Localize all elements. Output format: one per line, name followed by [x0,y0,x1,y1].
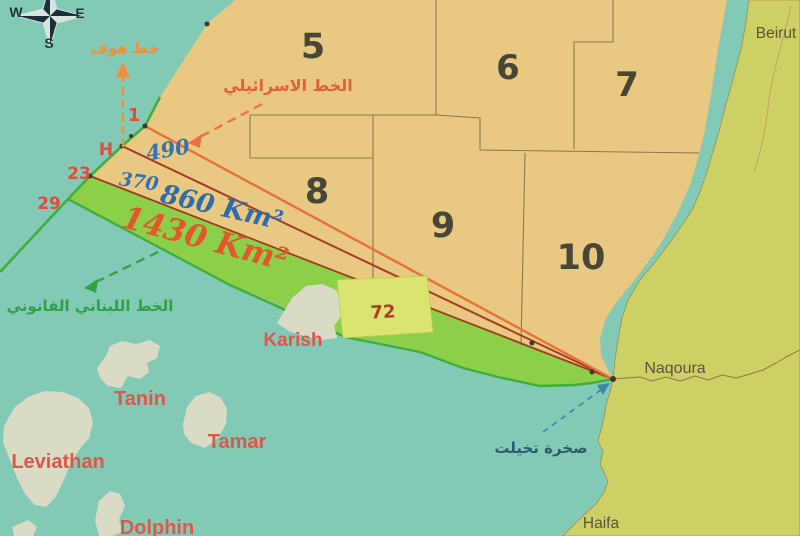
compass-south-label: S [44,35,53,51]
city-naqoura-label: Naqoura [644,360,705,377]
block-5-label: 5 [301,27,325,67]
leviathan-field-label: Leviathan [11,451,104,473]
tamar-field-label: Tamar [208,431,267,453]
maritime-border-map: W E S 5 6 7 8 9 10 72 1 H 23 29 490 370 … [0,0,800,536]
point-23-label: 23 [67,164,91,184]
block-7-label: 7 [615,65,639,105]
hof-line-label: خط هوف [90,39,159,57]
block-10-label: 10 [557,238,606,278]
tekhelet-rock-label: صخرة تخيلت [494,439,587,457]
karish-field-label: Karish [263,330,322,351]
block-9-label: 9 [431,206,455,246]
compass-east-label: E [75,5,84,21]
lebanese-line-label: الخط اللبناني القانوني [7,297,174,315]
city-haifa-label: Haifa [583,515,620,532]
tanin-field-label: Tanin [114,388,166,410]
dolphin-field-label: Dolphin [120,517,194,536]
block-72-label: 72 [370,301,396,323]
compass-west-label: W [9,4,23,20]
city-beirut-label: Beirut [756,25,797,42]
block-6-label: 6 [496,48,520,88]
block-8-label: 8 [305,172,329,212]
israeli-line-label: الخط الاسرائيلي [223,76,353,96]
point-29-label: 29 [37,194,61,214]
point-h-label: H [99,140,113,160]
point-1-label: 1 [128,105,141,126]
